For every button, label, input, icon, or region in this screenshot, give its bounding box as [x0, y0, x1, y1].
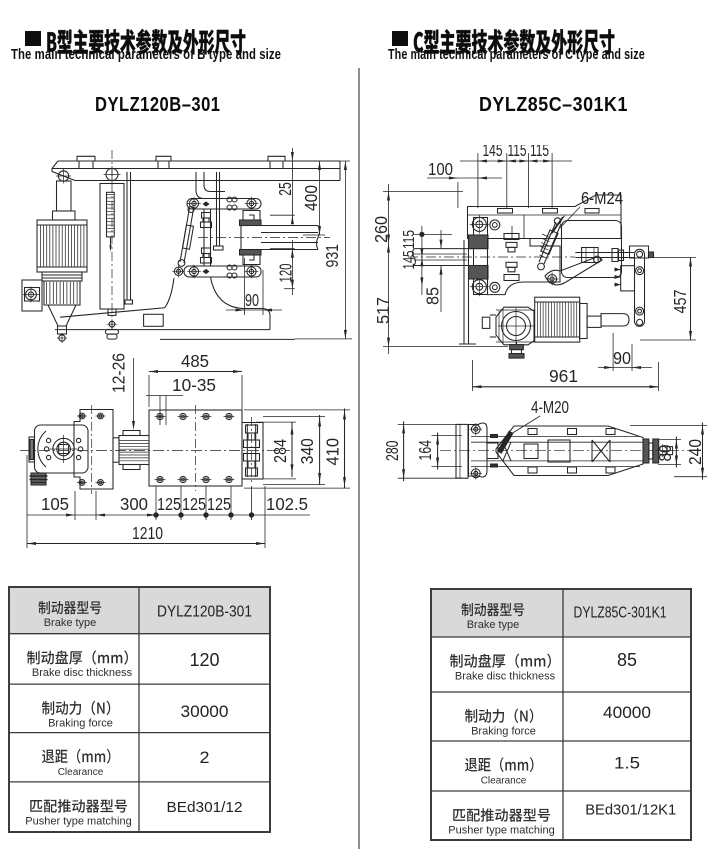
svg-text:2: 2 — [200, 748, 210, 767]
svg-text:Brake type: Brake type — [44, 617, 97, 629]
svg-text:85: 85 — [617, 650, 637, 670]
svg-text:90: 90 — [245, 290, 259, 310]
svg-text:115: 115 — [401, 230, 418, 249]
svg-text:485: 485 — [181, 351, 209, 371]
svg-text:Brake disc thickness: Brake disc thickness — [455, 671, 556, 683]
svg-text:Braking force: Braking force — [471, 726, 536, 738]
svg-text:240: 240 — [685, 439, 705, 465]
svg-text:284: 284 — [270, 439, 290, 463]
svg-text:125: 125 — [157, 494, 181, 514]
svg-text:90: 90 — [613, 348, 631, 368]
svg-text:BEd301/12K1: BEd301/12K1 — [585, 802, 676, 819]
svg-text:1.5: 1.5 — [614, 754, 640, 773]
svg-text:164: 164 — [415, 440, 435, 461]
svg-text:Pusher type matching: Pusher type matching — [25, 815, 131, 827]
svg-text:85: 85 — [423, 287, 443, 305]
svg-text:410: 410 — [323, 438, 343, 466]
svg-text:Clearance: Clearance — [58, 767, 104, 778]
svg-text:Brake disc thickness: Brake disc thickness — [32, 667, 133, 679]
svg-text:300: 300 — [120, 494, 148, 514]
svg-text:280: 280 — [382, 440, 402, 461]
svg-text:1210: 1210 — [132, 523, 163, 543]
svg-text:340: 340 — [297, 438, 317, 464]
svg-text:145: 145 — [401, 250, 418, 269]
svg-text:12-26: 12-26 — [109, 353, 129, 393]
svg-text:6-M24: 6-M24 — [581, 188, 623, 208]
svg-text:145: 145 — [483, 145, 503, 160]
svg-text:25: 25 — [275, 182, 295, 196]
svg-text:Clearance: Clearance — [481, 776, 527, 787]
svg-text:10-35: 10-35 — [172, 375, 216, 395]
svg-text:Braking force: Braking force — [48, 718, 113, 730]
svg-text:30000: 30000 — [181, 702, 229, 721]
svg-text:931: 931 — [322, 244, 342, 268]
svg-text:125: 125 — [207, 494, 231, 514]
svg-text:115: 115 — [530, 145, 549, 160]
svg-text:Pusher type matching: Pusher type matching — [448, 825, 554, 837]
svg-text:125: 125 — [182, 494, 206, 514]
svg-text:517: 517 — [373, 297, 393, 324]
svg-text:DYLZ85C-301K1: DYLZ85C-301K1 — [574, 605, 667, 622]
svg-text:260: 260 — [371, 216, 391, 243]
svg-text:400: 400 — [301, 185, 321, 211]
svg-text:80: 80 — [655, 444, 675, 461]
svg-text:Brake type: Brake type — [467, 619, 520, 631]
svg-text:120: 120 — [276, 263, 296, 282]
svg-text:105: 105 — [41, 494, 69, 514]
svg-text:100: 100 — [428, 159, 453, 179]
svg-text:40000: 40000 — [603, 703, 651, 722]
svg-text:4-M20: 4-M20 — [531, 397, 569, 417]
svg-text:BEd301/12: BEd301/12 — [167, 799, 243, 816]
svg-text:457: 457 — [670, 290, 690, 314]
svg-text:102.5: 102.5 — [266, 494, 308, 514]
svg-text:961: 961 — [549, 366, 578, 386]
svg-text:120: 120 — [190, 650, 220, 670]
svg-text:DYLZ120B-301: DYLZ120B-301 — [157, 604, 252, 621]
svg-text:115: 115 — [508, 145, 527, 160]
